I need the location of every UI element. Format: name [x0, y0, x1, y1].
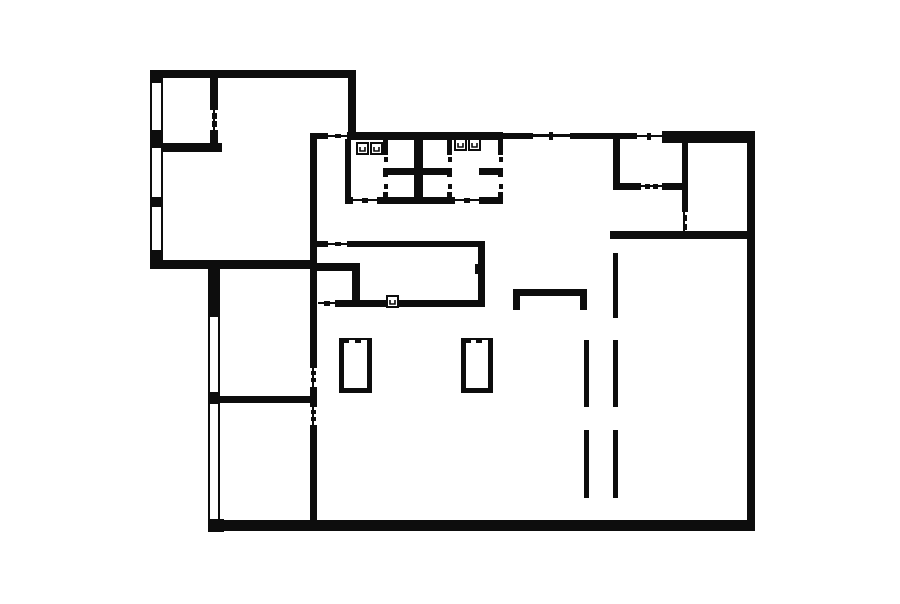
wall-segment — [345, 139, 351, 197]
door-leaf-tick — [645, 184, 650, 189]
wall-segment — [383, 139, 388, 155]
door-gap-line — [312, 407, 314, 425]
wall-segment — [513, 289, 587, 296]
wall-segment — [461, 388, 493, 393]
door-leaf-tick — [212, 113, 217, 119]
wall-segment — [498, 192, 503, 197]
wall-segment — [610, 231, 755, 239]
wall-segment — [747, 131, 755, 531]
wall-segment — [310, 133, 317, 368]
wall-segment — [682, 143, 688, 212]
door-leaf-tick — [311, 417, 316, 421]
door-leaf-tick — [311, 378, 316, 382]
wall-segment — [383, 192, 388, 197]
wall-segment — [339, 338, 344, 393]
window-glazing-line — [161, 148, 163, 197]
dashed-grid-segment — [584, 340, 589, 407]
door-leaf-tick — [499, 184, 503, 189]
wall-segment — [348, 70, 356, 134]
floorplan-page — [0, 0, 900, 604]
door-leaf-tick — [349, 338, 355, 340]
wall-segment — [335, 300, 478, 307]
door-leaf-tick — [471, 338, 476, 340]
wall-segment — [476, 338, 482, 343]
wall-segment — [367, 338, 372, 393]
door-leaf-tick — [448, 157, 452, 162]
door-gap-line — [312, 368, 314, 387]
dashed-grid-segment — [584, 430, 589, 498]
door-leaf-tick — [549, 132, 553, 140]
wall-segment — [479, 197, 503, 204]
wall-segment — [503, 133, 533, 139]
door-leaf-tick — [335, 134, 341, 138]
wall-segment — [613, 139, 620, 186]
wall-segment — [513, 289, 520, 310]
wall-segment — [447, 168, 452, 177]
door-leaf-tick — [324, 301, 330, 306]
door-leaf-tick — [482, 338, 488, 340]
wall-segment — [498, 168, 503, 177]
wall-segment — [347, 241, 485, 247]
sink-fixture-icon — [455, 139, 466, 150]
wall-segment — [475, 264, 479, 274]
wall-segment — [150, 70, 355, 78]
wall-segment — [461, 338, 466, 393]
wall-segment — [355, 338, 361, 343]
window-glazing-line — [218, 317, 220, 392]
door-leaf-tick — [683, 224, 687, 230]
door-leaf-tick — [212, 121, 217, 127]
wall-segment — [662, 131, 755, 143]
door-gap-line — [641, 185, 662, 187]
wall-segment — [150, 197, 163, 207]
wall-segment — [479, 168, 498, 175]
wall-segment — [212, 396, 314, 403]
door-leaf-tick — [361, 338, 367, 340]
wall-segment — [570, 133, 637, 139]
door-leaf-tick — [683, 215, 687, 221]
door-leaf-tick — [384, 184, 388, 189]
wall-segment — [498, 139, 503, 155]
wall-segment — [339, 388, 372, 393]
door-leaf-tick — [647, 133, 651, 140]
wall-segment — [150, 70, 163, 83]
wall-segment — [447, 139, 452, 155]
wall-segment — [447, 192, 452, 197]
wall-segment — [478, 241, 485, 307]
wall-segment — [163, 143, 222, 152]
dashed-grid-segment — [613, 430, 618, 498]
wall-segment — [150, 130, 163, 148]
door-leaf-tick — [384, 157, 388, 162]
wall-segment — [210, 78, 218, 110]
sink-fixture-icon — [357, 143, 368, 154]
door-leaf-tick — [311, 410, 316, 414]
door-leaf-tick — [362, 198, 368, 203]
wall-segment — [345, 197, 353, 204]
window-glazing-line — [150, 207, 152, 250]
sink-fixture-icon — [387, 296, 398, 307]
wall-segment — [317, 241, 328, 247]
sink-fixture-icon — [469, 139, 480, 150]
wall-segment — [208, 520, 755, 531]
floorplan-drawing — [0, 0, 900, 604]
window-glazing-line — [150, 83, 152, 130]
wall-segment — [461, 338, 471, 343]
wall-segment — [580, 289, 587, 310]
window-glazing-line — [208, 404, 210, 519]
wall-segment — [386, 168, 414, 175]
window-glazing-line — [161, 83, 163, 130]
door-leaf-tick — [311, 371, 316, 375]
wall-segment — [422, 168, 447, 175]
window-glazing-line — [208, 317, 210, 392]
wall-segment — [150, 260, 317, 269]
wall-segment — [613, 183, 641, 190]
wall-segment — [488, 338, 493, 393]
window-glazing-line — [150, 148, 152, 197]
door-leaf-tick — [653, 184, 658, 189]
window-glazing-line — [218, 404, 220, 519]
door-leaf-tick — [499, 157, 503, 162]
wall-segment — [377, 197, 455, 204]
wall-segment — [208, 268, 220, 317]
wall-segment — [310, 425, 317, 521]
dashed-grid-segment — [613, 253, 618, 318]
window-glazing-line — [161, 207, 163, 250]
wall-segment — [414, 139, 423, 197]
sink-fixture-icon — [371, 143, 382, 154]
wall-segment — [210, 130, 218, 144]
door-leaf-tick — [335, 242, 341, 246]
door-leaf-tick — [448, 184, 452, 189]
dashed-grid-segment — [613, 340, 618, 407]
door-leaf-tick — [464, 198, 470, 203]
wall-segment — [339, 338, 349, 343]
